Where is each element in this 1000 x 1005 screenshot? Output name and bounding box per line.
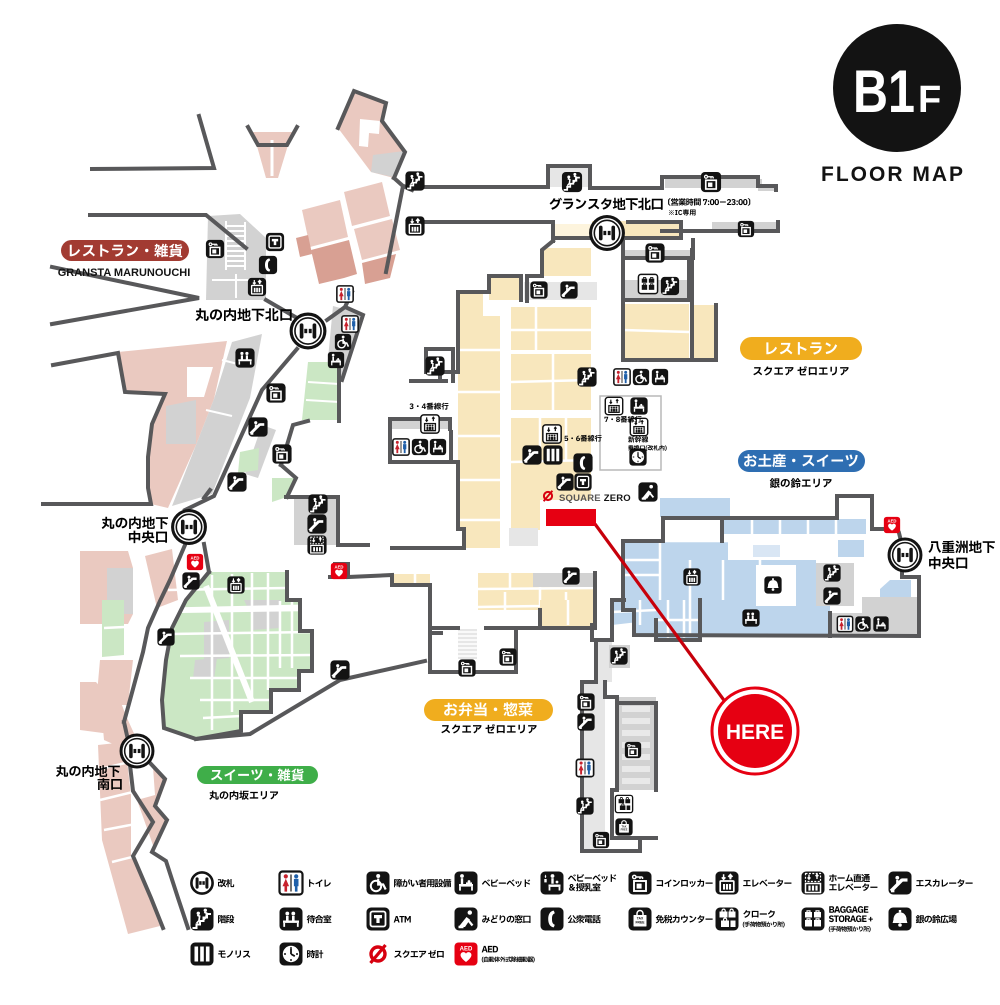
svg-text:GRANSTA MARUNOUCHI: GRANSTA MARUNOUCHI [58, 267, 191, 279]
svg-text:B1: B1 [853, 58, 915, 125]
svg-text:FLOOR MAP: FLOOR MAP [821, 163, 965, 186]
svg-text:F: F [918, 79, 941, 121]
svg-text:HERE: HERE [726, 721, 784, 744]
svg-text:SQUARE ZERO: SQUARE ZERO [559, 493, 631, 504]
